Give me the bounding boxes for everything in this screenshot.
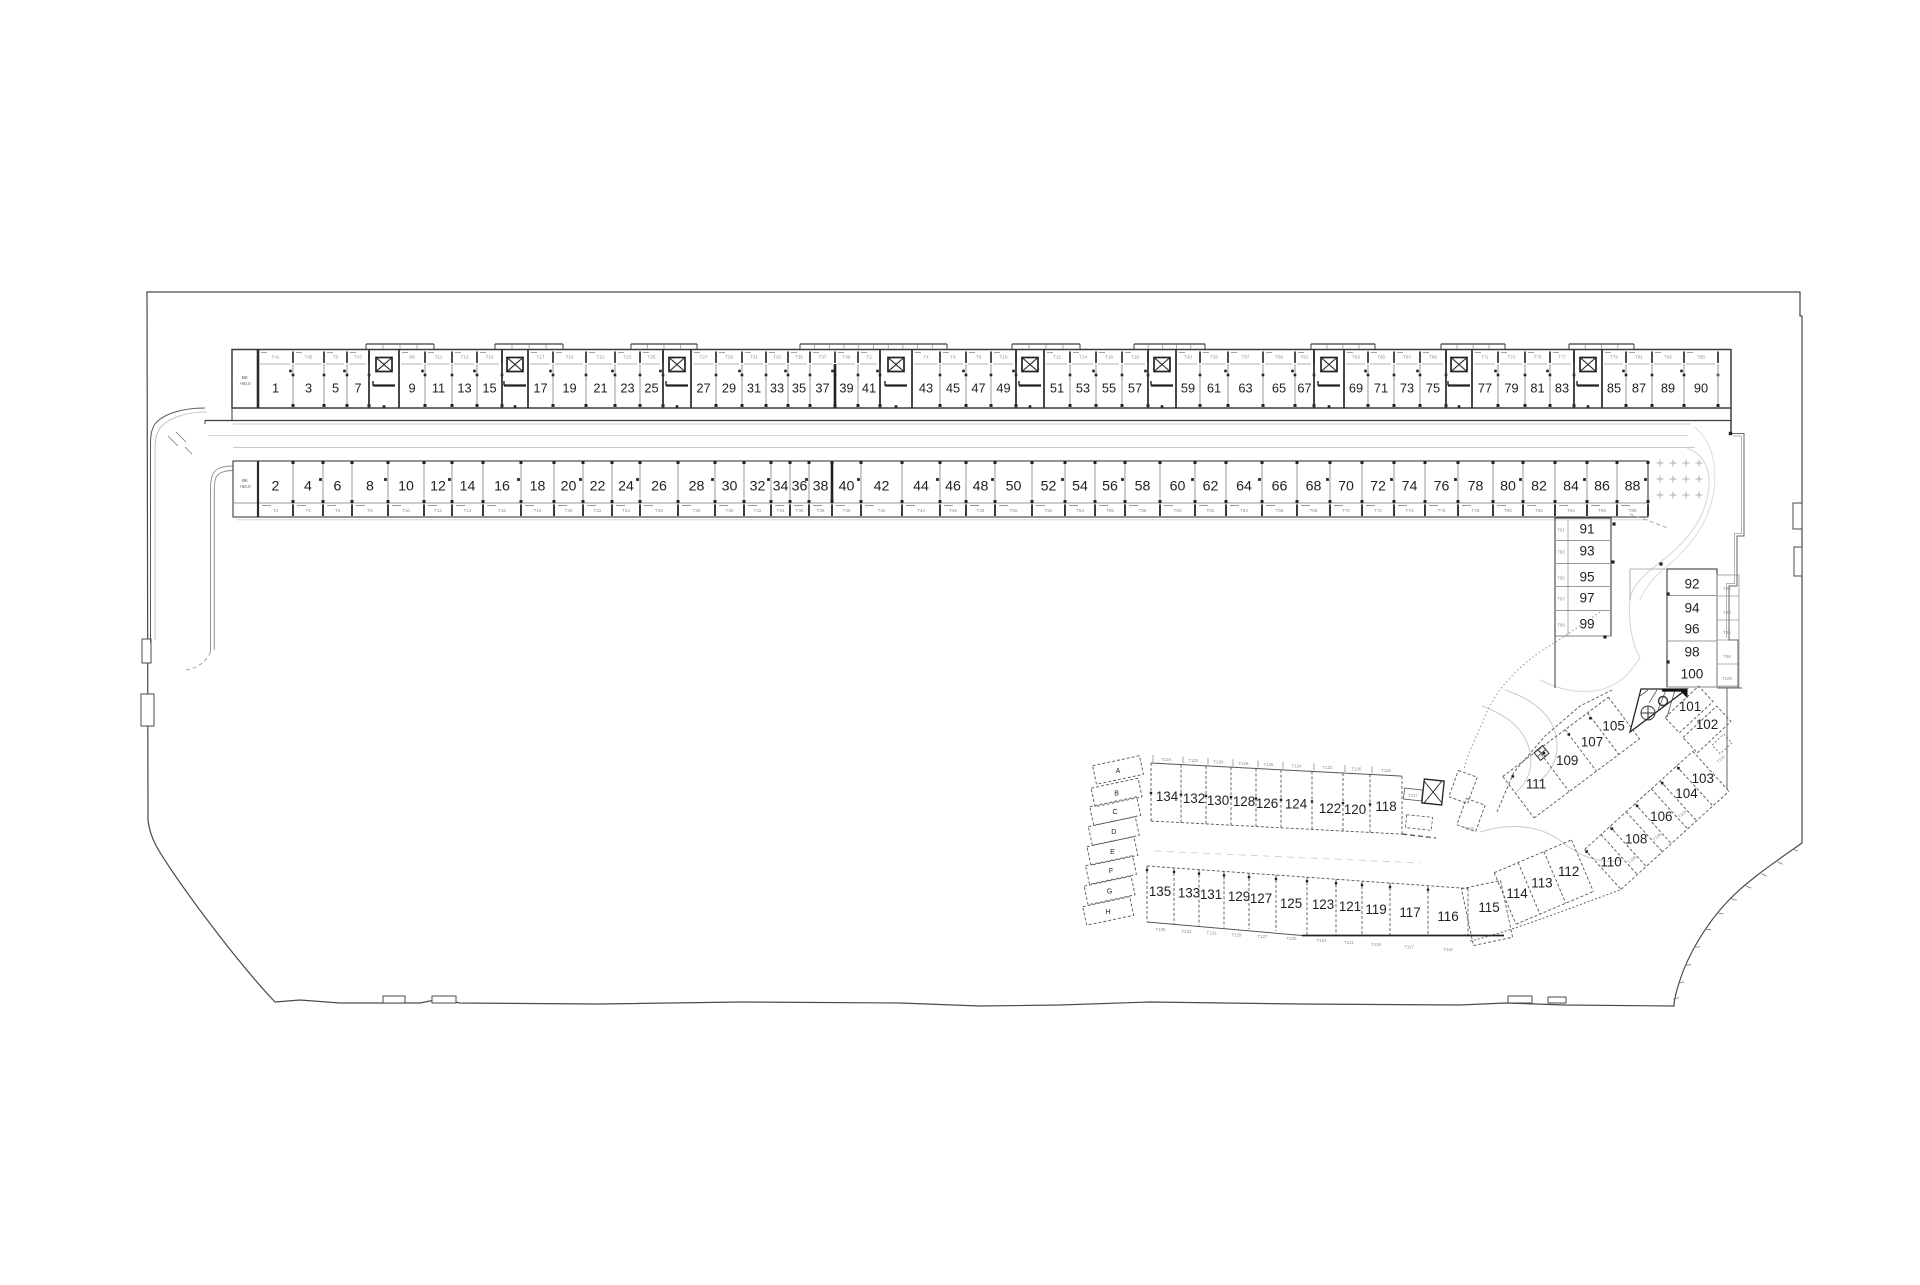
svg-text:75: 75 [1426,381,1440,396]
svg-text:T11: T11 [435,355,443,360]
svg-text:115: 115 [1478,900,1499,915]
svg-text:42: 42 [874,478,890,494]
svg-text:C: C [1113,809,1118,816]
svg-text:T34: T34 [777,508,785,513]
svg-text:76: 76 [1434,478,1450,494]
svg-text:2: 2 [272,478,280,494]
svg-text:52: 52 [1041,478,1057,494]
svg-text:T19: T19 [566,355,574,360]
svg-text:T115: T115 [1464,826,1474,831]
svg-text:49: 49 [996,381,1010,396]
svg-text:132: 132 [1183,791,1205,806]
svg-text:T35: T35 [795,355,803,360]
svg-text:T10: T10 [1000,355,1008,360]
svg-text:T82: T82 [1535,508,1543,513]
svg-text:T13: T13 [461,355,469,360]
svg-text:87: 87 [1632,381,1646,396]
svg-text:+60.0: +60.0 [239,381,251,386]
svg-text:68: 68 [1306,478,1322,494]
svg-text:T41: T41 [272,355,280,360]
svg-text:43: 43 [919,381,933,396]
svg-text:T15: T15 [486,355,494,360]
svg-text:T124: T124 [1291,764,1302,769]
svg-text:T10: T10 [402,508,410,513]
svg-text:T63: T63 [1352,355,1360,360]
svg-text:79: 79 [1504,381,1518,396]
svg-text:T45: T45 [305,355,313,360]
svg-text:T42: T42 [878,508,886,513]
svg-text:111: 111 [1526,777,1546,792]
svg-text:T58: T58 [1139,508,1147,513]
svg-text:105: 105 [1602,718,1624,733]
svg-text:T31: T31 [750,355,758,360]
svg-text:T50: T50 [1010,508,1018,513]
svg-text:28: 28 [689,478,705,494]
svg-text:19: 19 [562,381,576,396]
svg-text:67: 67 [1297,381,1311,396]
svg-text:17: 17 [533,381,547,396]
svg-text:120: 120 [1344,802,1366,817]
svg-text:104: 104 [1675,786,1698,801]
svg-text:108: 108 [1625,832,1647,847]
svg-text:T134: T134 [1161,757,1172,762]
svg-text:96: 96 [1684,622,1699,637]
svg-text:B: B [1114,791,1119,798]
svg-text:T96: T96 [1723,630,1731,635]
svg-text:125: 125 [1280,896,1302,911]
svg-text:T116: T116 [1443,947,1453,952]
svg-text:T67: T67 [1403,355,1411,360]
svg-text:T119: T119 [1371,942,1381,947]
svg-text:T74: T74 [1406,508,1414,513]
svg-text:T52: T52 [1045,508,1053,513]
svg-text:T83: T83 [1664,355,1672,360]
svg-text:80: 80 [1500,478,1516,494]
svg-text:T135: T135 [1155,927,1166,932]
svg-text:T16: T16 [498,508,506,513]
svg-text:18: 18 [530,478,546,494]
svg-text:12: 12 [430,478,446,494]
svg-text:57: 57 [1128,381,1142,396]
svg-text:44: 44 [913,478,929,494]
svg-text:106: 106 [1650,809,1672,824]
svg-text:4: 4 [304,478,312,494]
svg-text:T66: T66 [1276,508,1284,513]
svg-text:6: 6 [334,478,342,494]
svg-text:90: 90 [1694,381,1708,396]
svg-text:5: 5 [332,381,339,396]
svg-text:T30: T30 [726,508,734,513]
svg-text:11: 11 [432,381,445,396]
svg-text:T78: T78 [1472,508,1480,513]
svg-text:T55: T55 [1210,355,1218,360]
svg-text:107: 107 [1581,735,1603,750]
svg-text:T125: T125 [1286,936,1297,941]
svg-text:T133: T133 [1181,929,1192,934]
svg-text:21: 21 [593,381,607,396]
svg-text:T39: T39 [843,355,851,360]
svg-text:T132: T132 [1188,758,1199,763]
svg-text:54: 54 [1072,478,1088,494]
svg-text:T129: T129 [1231,932,1242,937]
svg-text:T93: T93 [1557,550,1565,555]
svg-text:113: 113 [1531,875,1552,890]
svg-text:39: 39 [839,381,853,396]
svg-text:102: 102 [1696,717,1718,732]
svg-text:98: 98 [1684,645,1699,660]
svg-text:T79: T79 [1610,355,1618,360]
svg-text:T57: T57 [1242,355,1250,360]
svg-text:72: 72 [1370,478,1386,494]
svg-text:24: 24 [618,478,634,494]
svg-text:8: 8 [366,478,374,494]
svg-text:81: 81 [1530,381,1544,396]
svg-text:T88: T88 [1629,508,1637,513]
svg-text:89: 89 [1661,381,1675,396]
svg-text:127: 127 [1250,891,1272,906]
svg-text:BK: BK [242,375,248,380]
svg-text:34: 34 [773,478,789,494]
svg-text:T24: T24 [622,508,630,513]
svg-text:T2: T2 [866,355,872,360]
svg-text:103: 103 [1692,771,1714,786]
svg-text:124: 124 [1285,797,1308,812]
svg-text:T100: T100 [1722,676,1733,681]
svg-text:T36: T36 [796,508,804,513]
svg-text:T21: T21 [597,355,605,360]
svg-text:T8: T8 [976,355,982,360]
svg-text:T32: T32 [754,508,762,513]
svg-text:T85: T85 [1697,355,1705,360]
svg-text:T18: T18 [534,508,542,513]
svg-text:T38: T38 [817,508,825,513]
svg-text:T12: T12 [1053,355,1061,360]
svg-text:10: 10 [398,478,414,494]
svg-text:T46: T46 [949,508,957,513]
svg-text:9: 9 [408,381,415,396]
svg-text:130: 130 [1207,793,1229,808]
svg-text:53: 53 [1076,381,1090,396]
svg-text:T64: T64 [1240,508,1248,513]
svg-text:64: 64 [1236,478,1252,494]
svg-text:BK: BK [242,478,248,483]
svg-text:T4: T4 [305,508,311,513]
svg-text:71: 71 [1374,381,1388,396]
svg-text:+60.0: +60.0 [239,484,251,489]
svg-text:133: 133 [1178,886,1200,901]
svg-text:27: 27 [696,381,710,396]
svg-text:32: 32 [750,478,766,494]
svg-text:128: 128 [1233,794,1255,809]
svg-text:T118: T118 [1381,768,1391,773]
svg-text:T6: T6 [335,508,341,513]
svg-text:T123: T123 [1316,938,1327,943]
svg-text:45: 45 [946,381,960,396]
svg-text:63: 63 [1238,381,1252,396]
svg-text:T23: T23 [624,355,632,360]
svg-text:T6: T6 [950,355,956,360]
svg-text:50: 50 [1006,478,1022,494]
svg-text:T122: T122 [1322,765,1333,770]
svg-text:T126: T126 [1263,762,1274,767]
svg-text:95: 95 [1579,570,1594,585]
svg-text:T62: T62 [1207,508,1215,513]
svg-text:T81: T81 [1635,355,1643,360]
svg-text:T120: T120 [1351,767,1362,772]
svg-text:T76: T76 [1438,508,1446,513]
svg-text:T37: T37 [819,355,827,360]
svg-text:T99: T99 [1557,623,1565,628]
svg-text:T25: T25 [648,355,656,360]
svg-text:T60: T60 [1174,508,1182,513]
svg-text:T65: T65 [1377,355,1385,360]
svg-text:66: 66 [1272,478,1288,494]
svg-text:61: 61 [1207,381,1221,396]
svg-text:119: 119 [1365,902,1386,917]
svg-text:T69: T69 [1429,355,1437,360]
svg-text:T98: T98 [1723,654,1731,659]
svg-text:94: 94 [1684,601,1700,616]
svg-text:G: G [1107,889,1112,896]
svg-text:60: 60 [1170,478,1186,494]
svg-text:86: 86 [1594,478,1610,494]
svg-text:99: 99 [1579,617,1594,632]
svg-text:65: 65 [1272,381,1286,396]
svg-text:T77: T77 [1558,355,1566,360]
svg-text:14: 14 [460,478,476,494]
svg-text:40: 40 [839,478,855,494]
svg-text:T70: T70 [1342,508,1350,513]
svg-text:T92: T92 [1723,586,1731,591]
svg-text:T14: T14 [1079,355,1087,360]
svg-text:T3: T3 [333,355,339,360]
svg-text:51: 51 [1050,381,1064,396]
svg-text:T48: T48 [977,508,985,513]
svg-text:D: D [1111,829,1116,836]
svg-text:121: 121 [1339,899,1361,914]
svg-text:T20: T20 [565,508,573,513]
svg-text:100: 100 [1681,667,1704,682]
svg-text:118: 118 [1375,799,1396,814]
svg-text:84: 84 [1563,478,1579,494]
svg-text:T127: T127 [1257,934,1268,939]
svg-text:116: 116 [1437,909,1458,924]
svg-text:T16: T16 [1105,355,1113,360]
svg-text:126: 126 [1256,796,1278,811]
svg-text:117: 117 [1399,905,1420,920]
svg-text:134: 134 [1156,789,1179,804]
svg-text:110: 110 [1600,855,1621,870]
svg-text:74: 74 [1402,478,1418,494]
svg-text:56: 56 [1102,478,1118,494]
svg-text:T17: T17 [537,355,545,360]
svg-text:T86: T86 [1598,508,1606,513]
svg-text:T26: T26 [655,508,663,513]
svg-text:23: 23 [620,381,634,396]
svg-text:T68: T68 [1310,508,1318,513]
svg-text:T121: T121 [1344,940,1355,945]
svg-text:T33: T33 [773,355,781,360]
svg-text:13: 13 [457,381,471,396]
svg-text:33: 33 [770,381,784,396]
svg-text:91: 91 [1579,522,1594,537]
svg-text:T2: T2 [273,508,279,513]
svg-text:77: 77 [1478,381,1492,396]
svg-text:T27: T27 [700,355,708,360]
svg-text:B9: B9 [409,355,415,360]
svg-text:93: 93 [1579,544,1594,559]
svg-text:T95: T95 [1557,576,1565,581]
svg-text:E: E [1110,849,1115,856]
svg-text:122: 122 [1319,801,1341,816]
svg-text:T8: T8 [367,508,373,513]
svg-text:H: H [1106,909,1111,916]
svg-text:69: 69 [1349,381,1363,396]
svg-text:T29: T29 [725,355,733,360]
svg-text:135: 135 [1149,884,1171,899]
svg-text:T18: T18 [1131,355,1139,360]
svg-text:62: 62 [1203,478,1219,494]
svg-text:83: 83 [1555,381,1569,396]
svg-text:88: 88 [1625,478,1641,494]
svg-text:1: 1 [272,381,279,396]
svg-text:129: 129 [1228,889,1250,904]
svg-text:109: 109 [1556,753,1578,768]
svg-text:20: 20 [561,478,577,494]
svg-text:59: 59 [1181,381,1195,396]
svg-text:T130: T130 [1213,760,1224,765]
svg-text:85: 85 [1607,381,1621,396]
svg-text:26: 26 [651,478,667,494]
svg-text:78: 78 [1468,478,1484,494]
svg-text:7: 7 [354,381,361,396]
svg-text:T28: T28 [693,508,701,513]
svg-text:T20: T20 [1184,355,1192,360]
svg-text:T73: T73 [1508,355,1516,360]
svg-text:T22: T22 [594,508,602,513]
svg-text:131: 131 [1200,887,1222,902]
svg-text:114: 114 [1506,886,1528,901]
svg-text:29: 29 [722,381,736,396]
svg-text:T75: T75 [1534,355,1542,360]
svg-text:T72: T72 [1374,508,1382,513]
svg-text:F: F [1109,868,1113,875]
svg-text:73: 73 [1400,381,1414,396]
svg-text:T80: T80 [1504,508,1512,513]
svg-text:31: 31 [747,381,761,396]
svg-text:46: 46 [945,478,961,494]
svg-text:T94: T94 [1723,610,1731,615]
svg-text:112: 112 [1558,864,1579,879]
svg-text:35: 35 [792,381,806,396]
svg-text:T61: T61 [1301,355,1309,360]
svg-text:T4: T4 [923,355,929,360]
svg-text:T54: T54 [1076,508,1084,513]
svg-text:92: 92 [1684,577,1699,592]
svg-text:T84: T84 [1567,508,1575,513]
svg-text:T128: T128 [1238,761,1249,766]
svg-text:15: 15 [482,381,496,396]
svg-text:T14: T14 [464,508,472,513]
svg-text:22: 22 [590,478,606,494]
svg-text:97: 97 [1579,591,1594,606]
svg-text:101: 101 [1679,699,1701,714]
svg-text:123: 123 [1312,897,1334,912]
svg-text:T47: T47 [354,355,362,360]
svg-text:37: 37 [815,381,829,396]
svg-text:T56: T56 [1106,508,1114,513]
svg-text:T44: T44 [917,508,925,513]
svg-text:T117: T117 [1404,944,1414,949]
svg-text:30: 30 [722,478,738,494]
svg-text:47: 47 [971,381,985,396]
svg-text:58: 58 [1135,478,1151,494]
svg-text:A: A [1116,768,1121,775]
svg-text:38: 38 [813,478,829,494]
svg-text:82: 82 [1531,478,1547,494]
svg-text:3: 3 [305,381,312,396]
svg-text:16: 16 [494,478,510,494]
svg-text:70: 70 [1338,478,1354,494]
svg-text:T40: T40 [843,508,851,513]
svg-text:48: 48 [973,478,989,494]
svg-text:T59: T59 [1275,355,1283,360]
svg-text:T91: T91 [1557,528,1565,533]
svg-text:55: 55 [1102,381,1116,396]
svg-text:T12: T12 [434,508,442,513]
svg-text:T71: T71 [1481,355,1489,360]
svg-text:25: 25 [644,381,658,396]
svg-text:T117: T117 [1408,793,1418,798]
svg-text:T131: T131 [1206,931,1217,936]
svg-text:T97: T97 [1557,597,1565,602]
svg-text:41: 41 [862,381,876,396]
